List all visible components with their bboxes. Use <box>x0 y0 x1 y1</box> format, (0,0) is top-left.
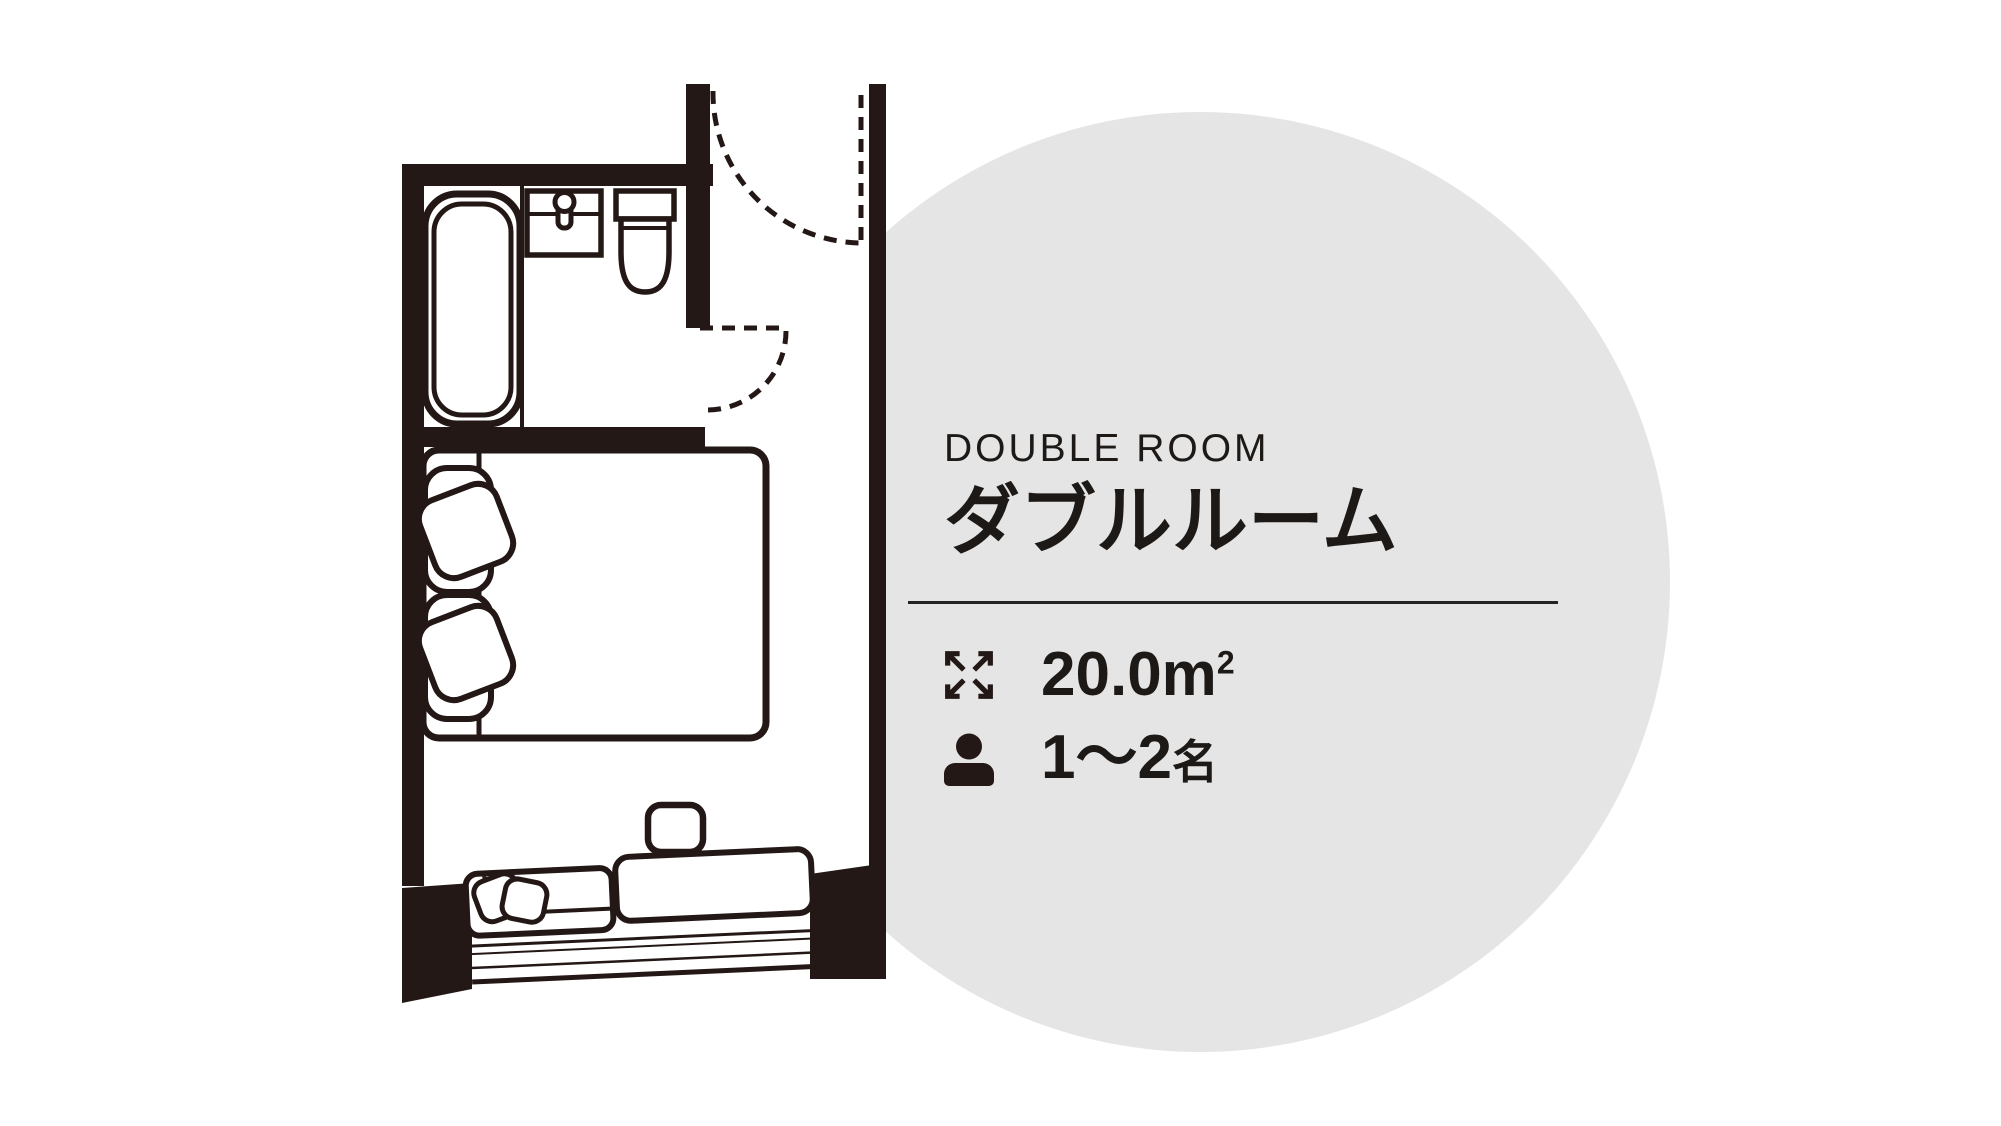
bathtub <box>425 194 520 424</box>
capacity-value: 1〜2名 <box>1041 729 1218 791</box>
area-value: 20.0m2 <box>1041 646 1235 704</box>
right-bay-wall <box>810 863 886 979</box>
capacity-spec-row: 1〜2名 <box>943 731 1218 789</box>
divider-line <box>908 601 1558 604</box>
bench-right <box>615 849 814 922</box>
toilet <box>616 191 674 292</box>
area-spec-row: 20.0m2 <box>943 646 1235 704</box>
toilet-tank <box>616 191 674 219</box>
room-info-graphic: DOUBLE ROOM ダブルルーム 20.0m2 1〜2名 <box>0 0 2001 1126</box>
room-name-ja: ダブルルーム <box>944 474 1398 569</box>
expand-arrows-icon <box>943 648 995 702</box>
side-table <box>648 805 703 852</box>
right-wall <box>869 84 886 866</box>
capacity-unit: 名 <box>1172 736 1218 788</box>
capacity-range: 1〜2 <box>1041 723 1172 792</box>
floor-plan <box>395 70 895 1015</box>
area-number: 20.0 <box>1041 640 1162 709</box>
faucet <box>555 193 574 212</box>
left-bay-wall <box>402 883 472 1003</box>
bathroom-divider-wall <box>402 427 705 447</box>
room-name-en: DOUBLE ROOM <box>944 427 1270 471</box>
area-unit: m <box>1162 640 1217 709</box>
bathroom-top-wall <box>402 164 713 186</box>
washbasin <box>527 191 601 255</box>
double-bed <box>413 450 766 738</box>
bench-cushion <box>500 877 549 925</box>
person-icon <box>943 733 995 787</box>
entrance-left-wall <box>686 84 710 328</box>
area-unit-exponent: 2 <box>1217 644 1235 680</box>
